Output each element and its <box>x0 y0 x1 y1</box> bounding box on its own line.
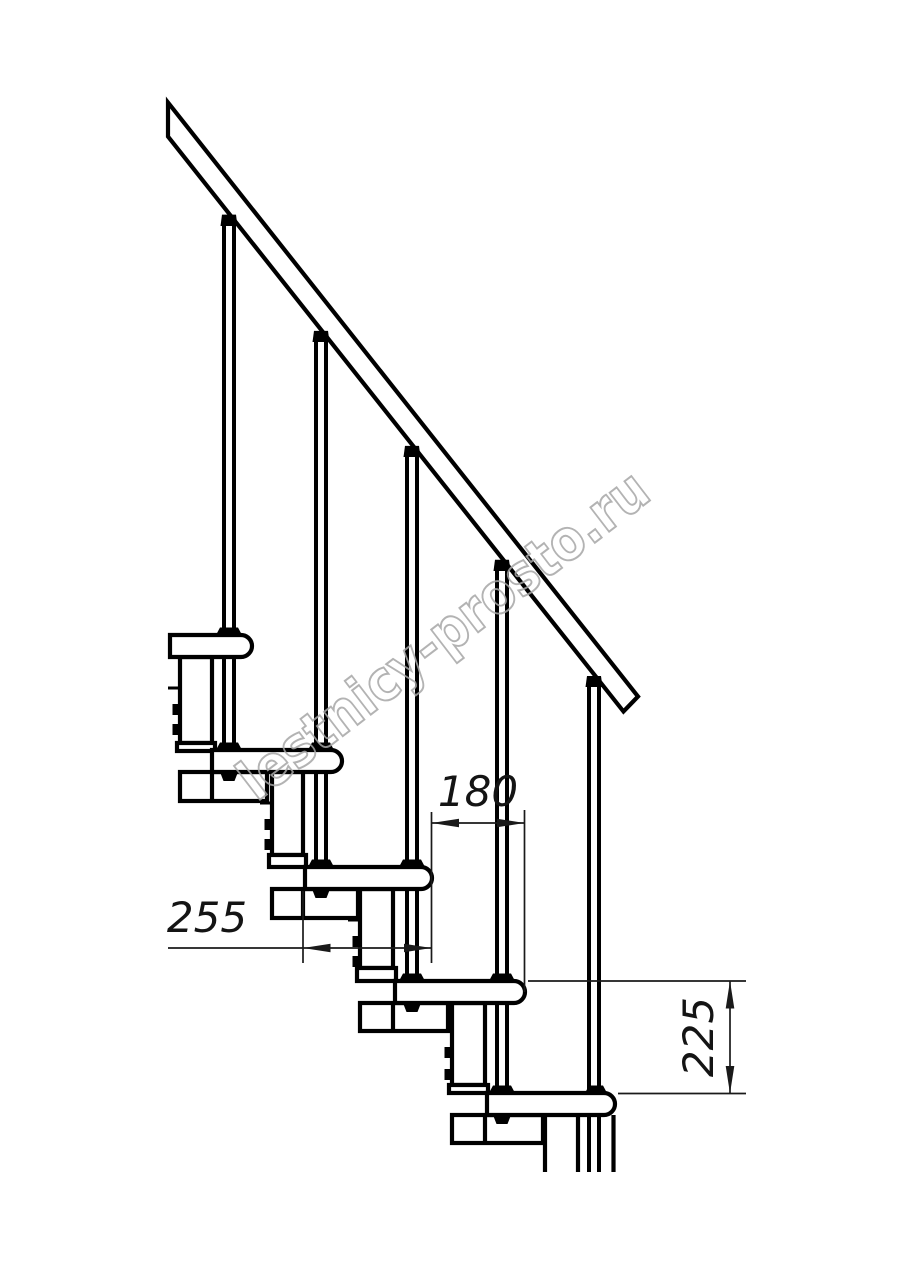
arrow-left-icon <box>432 819 460 828</box>
bolt-icon <box>173 724 182 735</box>
tread-5 <box>487 1093 615 1115</box>
support-column-3 <box>348 889 448 1031</box>
handrail <box>168 103 638 712</box>
baluster-1 <box>224 226 234 755</box>
arrow-right-icon <box>497 819 525 828</box>
tread-3 <box>305 867 432 889</box>
baluster-2 <box>316 342 326 872</box>
baluster-3 <box>407 457 417 986</box>
drawing-canvas: 180 255 225 lestnicy-prosto.ru <box>0 0 914 1280</box>
dimension-label-225: 225 <box>674 997 723 1077</box>
tread-1 <box>170 635 252 657</box>
bolt-icon <box>173 704 182 715</box>
arrow-up-icon <box>726 981 735 1009</box>
watermark-text: lestnicy-prosto.ru <box>226 457 662 813</box>
dimension-riser-height: 225 <box>528 981 746 1094</box>
handrail-collars <box>221 215 603 687</box>
support-column-5 <box>545 1115 614 1172</box>
dimension-step-going: 180 <box>432 767 525 992</box>
bolt-icon <box>353 956 362 967</box>
tread-4 <box>395 981 525 1003</box>
bolt-icon <box>353 936 362 947</box>
dimension-label-255: 255 <box>167 893 247 942</box>
bolt-icon <box>445 1069 454 1080</box>
arrow-left-icon <box>303 944 331 953</box>
dimension-label-180: 180 <box>438 767 518 816</box>
support-column-4 <box>445 1003 544 1143</box>
bolt-icon <box>265 839 274 850</box>
baluster-4 <box>497 571 507 1097</box>
bolt-icon <box>265 819 274 830</box>
staircase-technical-drawing: 180 255 225 lestnicy-prosto.ru <box>0 0 914 1280</box>
bolt-icon <box>445 1047 454 1058</box>
arrow-down-icon <box>726 1066 735 1094</box>
